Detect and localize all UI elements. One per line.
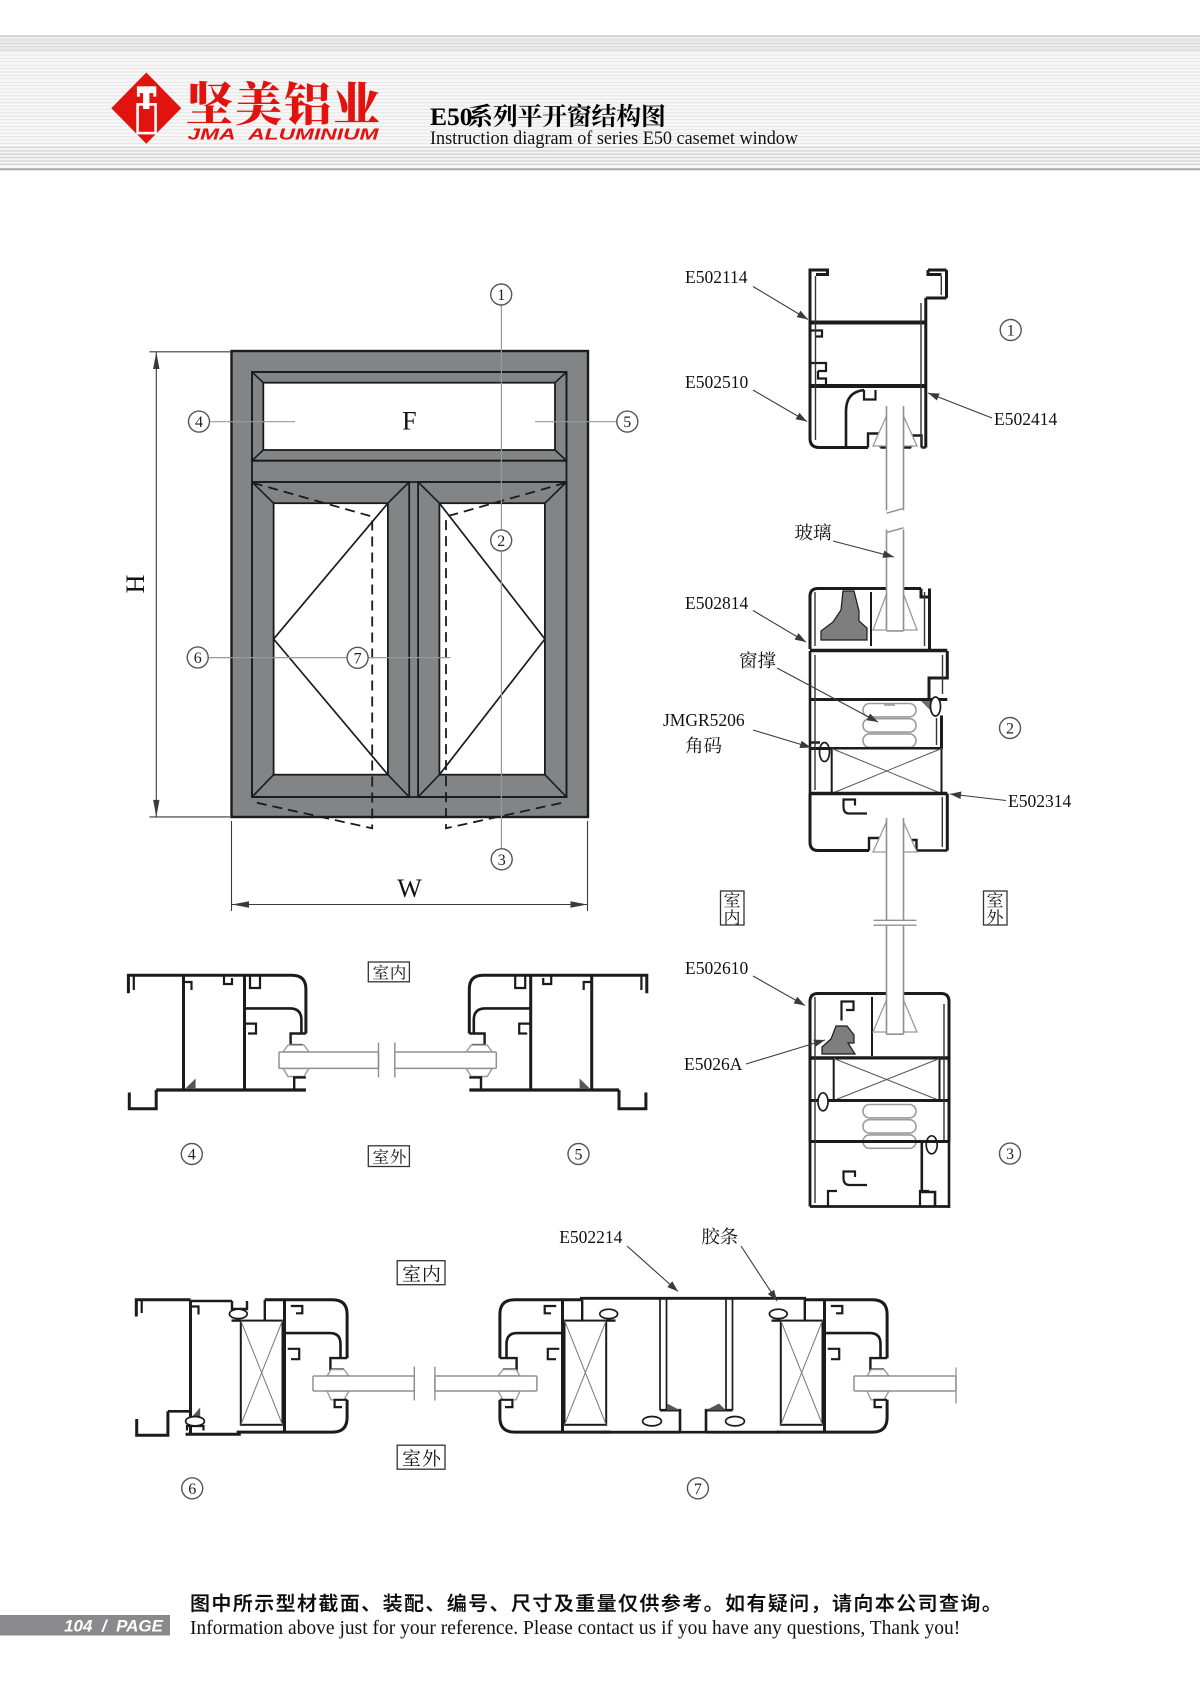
svg-text:1: 1 bbox=[497, 287, 505, 304]
svg-text:E502414: E502414 bbox=[994, 409, 1057, 429]
svg-text:3: 3 bbox=[1006, 1146, 1014, 1163]
svg-text:E502214: E502214 bbox=[559, 1227, 622, 1247]
svg-text:W: W bbox=[397, 874, 422, 903]
svg-text:E502814: E502814 bbox=[685, 593, 748, 613]
svg-text:E5026A: E5026A bbox=[684, 1054, 743, 1074]
svg-text:2: 2 bbox=[1006, 721, 1014, 738]
svg-text:4: 4 bbox=[195, 414, 203, 431]
svg-text:5: 5 bbox=[575, 1147, 583, 1164]
svg-text:E502114: E502114 bbox=[685, 267, 748, 287]
svg-text:F: F bbox=[402, 407, 416, 436]
svg-text:H: H bbox=[121, 574, 150, 593]
svg-text:JMGR5206: JMGR5206 bbox=[663, 710, 745, 730]
svg-text:Information above just for you: Information above just for your referenc… bbox=[190, 1618, 960, 1639]
svg-text:E502610: E502610 bbox=[685, 958, 748, 978]
svg-text:7: 7 bbox=[354, 650, 362, 667]
svg-text:3: 3 bbox=[498, 852, 506, 869]
svg-text:Instruction diagram of series: Instruction diagram of series E50 caseme… bbox=[430, 128, 798, 149]
svg-text:6: 6 bbox=[188, 1481, 196, 1498]
svg-text:JMA ALUMINIUM: JMA ALUMINIUM bbox=[188, 127, 381, 144]
svg-text:5: 5 bbox=[623, 414, 631, 431]
svg-text:7: 7 bbox=[694, 1481, 702, 1498]
svg-text:E502510: E502510 bbox=[685, 372, 748, 392]
svg-text:E50: E50 bbox=[430, 102, 473, 131]
svg-text:E502314: E502314 bbox=[1008, 791, 1071, 811]
svg-text:104 / PAGE: 104 / PAGE bbox=[64, 1617, 164, 1636]
svg-text:6: 6 bbox=[194, 650, 202, 667]
svg-text:4: 4 bbox=[188, 1147, 196, 1164]
svg-text:2: 2 bbox=[497, 533, 505, 550]
svg-text:1: 1 bbox=[1007, 323, 1015, 340]
